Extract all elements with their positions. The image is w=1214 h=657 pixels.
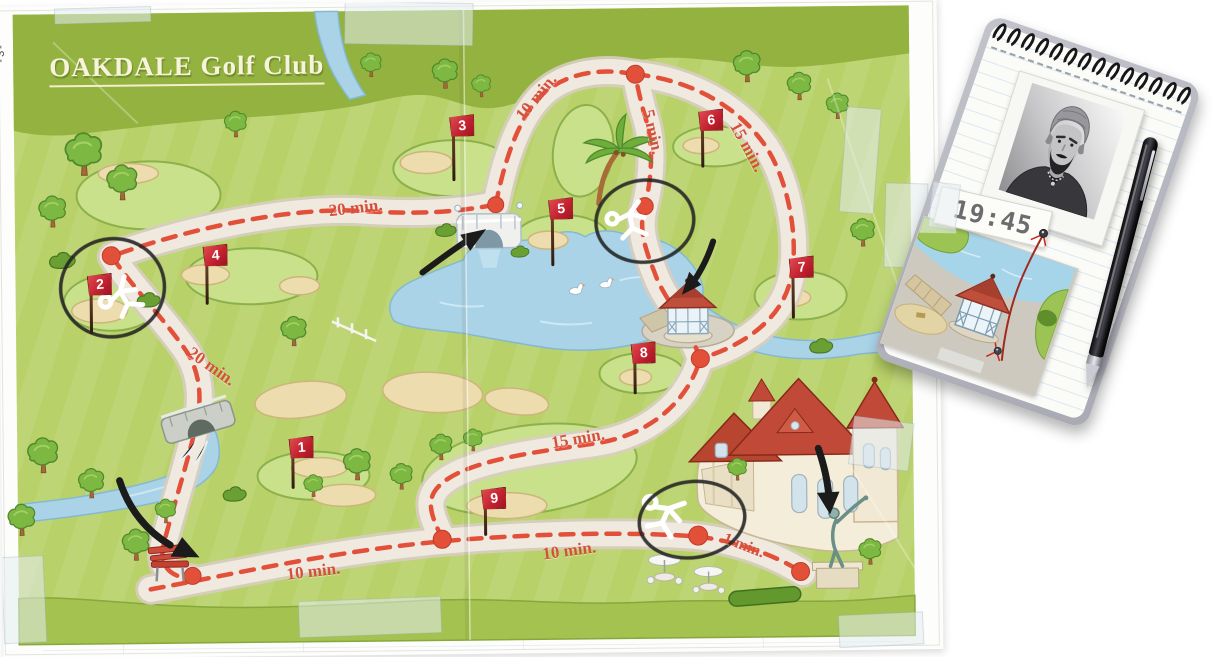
hole-flag-2: 2	[87, 274, 111, 296]
tape	[928, 181, 961, 230]
hole-flag-6: 6	[699, 109, 723, 131]
hole-flag-3: 3	[450, 115, 474, 137]
page-number: -3-	[0, 43, 7, 63]
suspect-portrait	[991, 80, 1135, 222]
photo-of-map-and-notepad: OAKDALE Golf Club -3- 1 2 3 4 5 6 7 8 9 …	[0, 0, 1214, 657]
golf-club-map: OAKDALE Golf Club -3- 1 2 3 4 5 6 7 8 9 …	[0, 0, 943, 657]
hole-flag-1: 1	[289, 437, 313, 459]
map-artwork	[0, 0, 943, 657]
hole-flag-9: 9	[482, 488, 506, 510]
hole-flag-5: 5	[549, 198, 573, 220]
map-title: OAKDALE Golf Club	[49, 50, 324, 88]
hole-flag-8: 8	[631, 342, 655, 364]
hole-flag-7: 7	[789, 256, 813, 278]
hole-flag-4: 4	[203, 245, 227, 267]
